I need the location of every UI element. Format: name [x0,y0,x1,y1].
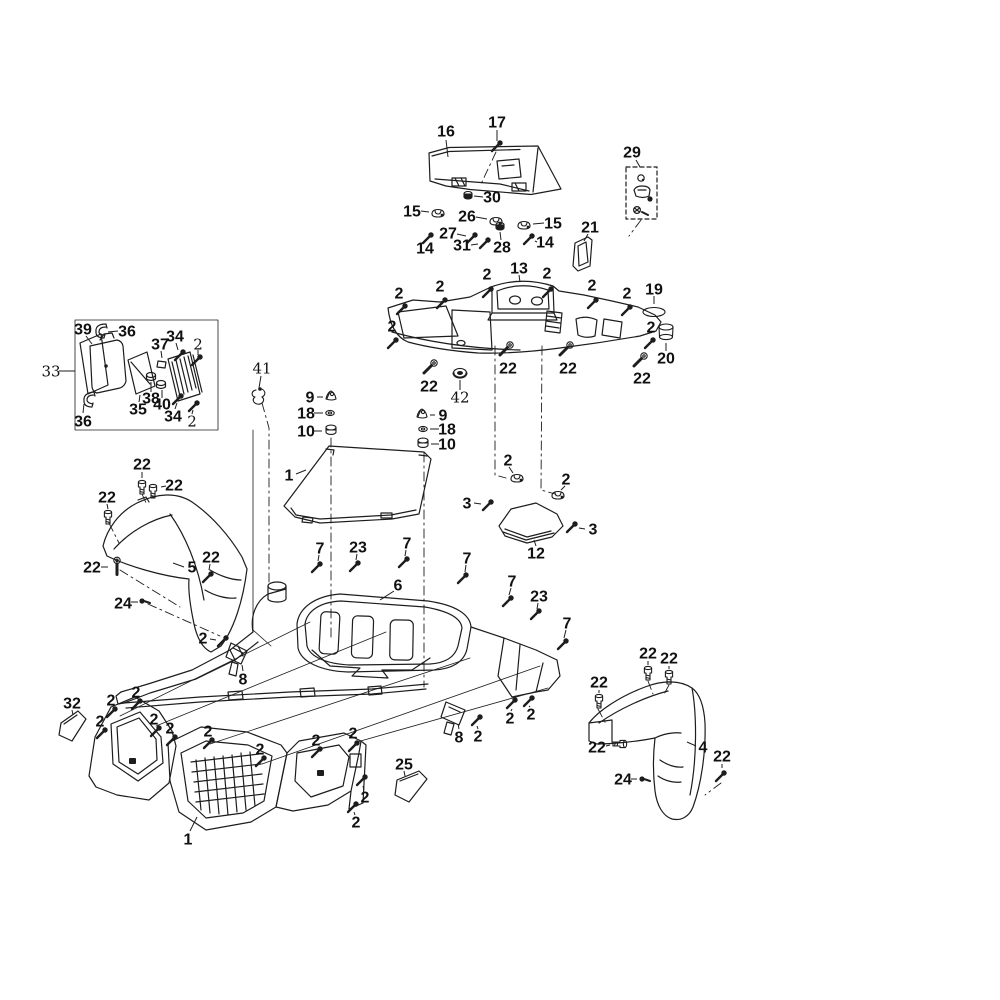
callout-9: 9 [306,390,315,407]
screw-glyph [716,770,727,781]
callout-2: 2 [312,733,321,750]
clip9-glyph [326,391,336,400]
leader-line [533,223,544,224]
callout-1: 1 [285,468,294,485]
callout-2: 2 [352,815,361,832]
callout-1: 1 [184,832,193,849]
screw-glyph [458,572,469,583]
leader-line [474,503,481,504]
callout-7: 7 [403,536,412,553]
callout-2: 2 [361,790,370,807]
clip-glyph [552,492,564,500]
callout-14: 14 [536,235,554,252]
clip-glyph [511,475,523,483]
projection-lines [109,152,721,795]
grommet10-glyph [326,425,336,434]
callout-22: 22 [202,550,220,567]
callout-7: 7 [316,541,325,558]
boltv-glyph [149,484,156,498]
callout-10: 10 [438,437,456,454]
callout-14: 14 [416,241,434,258]
exploded-parts-diagram: 1617293015261521273128141413222222192220… [0,0,1000,1000]
callout-32: 32 [63,696,81,713]
leader-line [579,528,585,529]
callout-22: 22 [660,651,678,668]
part-32-plate [59,711,86,741]
callout-22: 22 [713,749,731,766]
part-12-access-panel [499,503,563,543]
callout-24: 24 [114,596,132,613]
callout-2: 2 [150,712,159,729]
callout-2: 2 [204,724,213,741]
screw-glyph [483,499,494,510]
bolt45-glyph [424,360,437,373]
callout-34: 34 [166,329,184,346]
callout-5: 5 [188,560,197,577]
callout-17: 17 [488,115,506,132]
callout-22: 22 [165,478,183,495]
part-5-left-fender [103,495,247,652]
callout-2: 2 [527,707,536,724]
boltv-glyph [138,480,145,494]
callout-2: 2 [199,631,208,648]
callout-41: 41 [252,359,271,377]
callout-7: 7 [463,551,472,568]
callout-22: 22 [83,560,101,577]
callout-16: 16 [437,124,455,141]
leader-line [606,745,610,746]
clip-glyph [432,210,444,218]
leader-line [421,211,429,212]
part-13-dash-panel [388,281,661,353]
rivet-glyph [639,776,650,781]
screw-glyph [524,233,535,244]
callout-2: 2 [256,742,265,759]
diagram-canvas: 1617293015261521273128141413222222192220… [0,0,1000,1000]
callout-2: 2 [647,320,656,337]
callout-2: 2 [588,278,597,295]
callout-8: 8 [455,730,464,747]
rivet-glyph [139,598,150,603]
callout-39: 39 [74,322,92,339]
leader-line [474,196,483,197]
washer-glyph [326,410,334,415]
callout-13: 13 [510,261,528,278]
part-29-hardware-kit [626,167,657,219]
screw-glyph [492,140,503,151]
leader-line [471,244,478,245]
callout-7: 7 [508,574,517,591]
callout-23: 23 [530,589,548,606]
part-25-plate [395,771,427,802]
callout-36: 36 [74,414,92,431]
leader-line [242,665,243,671]
callout-19: 19 [645,282,663,299]
callout-22: 22 [499,361,517,378]
callout-22: 22 [559,361,577,378]
screw-glyph [472,714,483,725]
callout-15: 15 [544,216,562,233]
screw-glyph [203,571,214,582]
screw-glyph [503,595,514,606]
washer-glyph [419,426,427,431]
callout-7: 7 [563,616,572,633]
boltv-glyph [665,670,672,684]
boltv-glyph [644,666,651,680]
screw-glyph [189,400,200,411]
washer42-glyph [454,368,467,377]
screw-glyph [312,561,323,572]
grommet-glyph [464,192,472,200]
callout-8: 8 [239,672,248,689]
screw-glyph [480,237,491,248]
screw-glyph [588,297,599,308]
callout-2: 2 [395,286,404,303]
callout-12: 12 [527,546,545,563]
callout-2: 2 [543,266,552,283]
clip9-glyph [417,409,427,418]
bolt45-glyph [634,353,647,366]
screw-glyph [531,608,542,619]
callout-21: 21 [581,220,599,237]
callout-33: 33 [41,362,60,380]
callout-6: 6 [394,578,403,595]
callout-36: 36 [118,324,136,341]
callout-2: 2 [436,279,445,296]
callout-layer: 1617293015261521273128141413222222192220… [41,115,731,849]
screw-glyph [173,393,184,404]
callout-22: 22 [420,379,438,396]
callout-2: 2 [187,412,197,430]
callout-22: 22 [639,646,657,663]
screw-glyph [350,560,361,571]
part-4-right-fender [589,682,705,820]
part-6-front-body [116,582,560,708]
callout-2: 2 [474,729,483,746]
callout-2: 2 [349,726,358,743]
leader-line [210,639,216,640]
callout-2: 2 [96,714,105,731]
leader-line [83,404,84,413]
callout-31: 31 [453,238,471,255]
callout-3: 3 [463,496,472,513]
screw-glyph [399,556,410,567]
callout-20: 20 [657,351,675,368]
callout-18: 18 [297,406,315,423]
leader-line [476,217,487,219]
callout-25: 25 [395,757,413,774]
callout-3: 3 [589,522,598,539]
screw-glyph [357,774,368,785]
cup-glyph [659,324,673,340]
callout-10: 10 [297,424,315,441]
leader-line [173,563,184,567]
callout-2: 2 [506,711,515,728]
screw-glyph [558,638,569,649]
screw-glyph [218,635,229,646]
callout-22: 22 [633,371,651,388]
leader-line [687,742,696,746]
callout-30: 30 [483,190,501,207]
callout-2: 2 [483,267,492,284]
callout-2: 2 [388,319,397,336]
callout-2: 2 [132,685,141,702]
callout-24: 24 [614,772,632,789]
part-21-side-bracket-panel [573,237,592,271]
callout-2: 2 [504,453,513,470]
boltv-glyph [613,740,627,747]
callout-26: 26 [458,209,476,226]
screw-glyph [645,337,656,348]
callout-22: 22 [588,740,606,757]
screw-glyph [388,337,399,348]
callout-29: 29 [623,145,641,162]
callout-2: 2 [166,721,175,738]
screw-glyph [524,695,535,706]
callout-2: 2 [107,693,116,710]
screw-glyph [622,304,633,315]
callout-34: 34 [164,409,182,426]
screw-glyph [567,521,578,532]
callout-2: 2 [623,286,632,303]
boltv-glyph [595,694,602,708]
clip-glyph [518,222,530,230]
callout-42: 42 [450,388,469,406]
callout-28: 28 [493,240,511,257]
part-1-front-fascia [89,697,366,830]
hook-glyph [252,387,265,404]
part-1-inner-panel [284,446,431,523]
callout-2: 2 [193,335,203,353]
leader-line [259,376,261,388]
leader-line [108,331,118,332]
alignment-lines [120,430,548,764]
grommet10-glyph [418,438,428,447]
bolt45-glyph [560,342,573,355]
callout-22: 22 [590,675,608,692]
leader-line [296,470,306,474]
callout-23: 23 [349,540,367,557]
callout-15: 15 [403,204,421,221]
callout-2: 2 [562,472,571,489]
callout-22: 22 [98,490,116,507]
boltv-glyph [104,510,111,524]
callout-22: 22 [133,457,151,474]
leader-line [457,234,466,236]
callout-4: 4 [699,740,708,757]
